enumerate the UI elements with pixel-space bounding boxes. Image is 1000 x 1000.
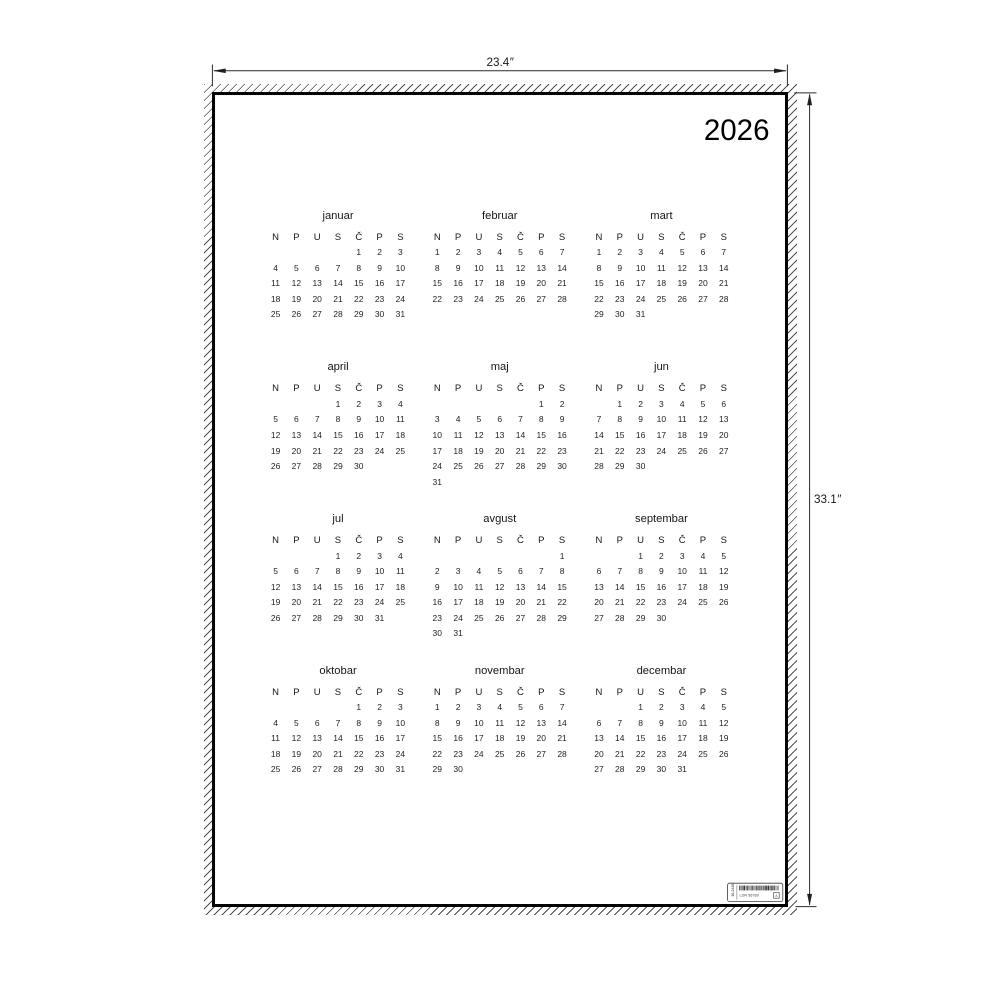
svg-text:16-2436: 16-2436 bbox=[731, 884, 735, 897]
svg-text:LDR 56789: LDR 56789 bbox=[740, 894, 759, 898]
